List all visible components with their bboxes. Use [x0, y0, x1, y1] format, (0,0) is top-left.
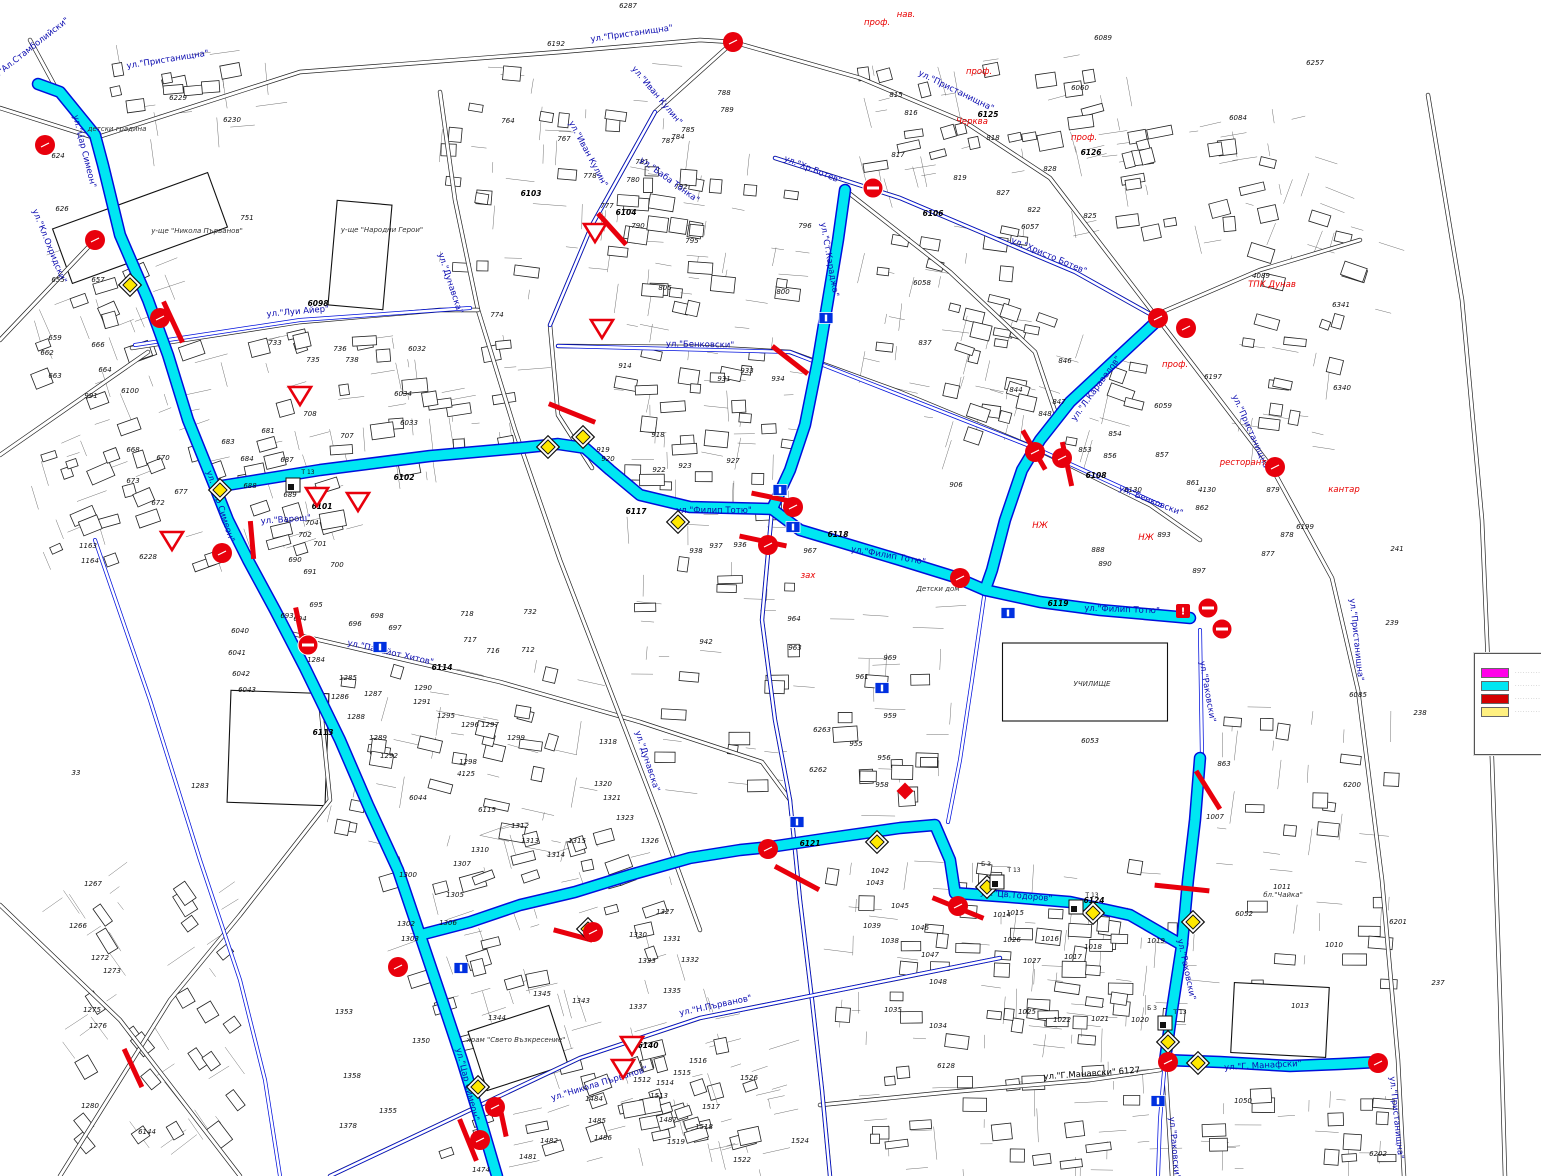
parcel-line [904, 862, 908, 890]
building [677, 557, 689, 572]
parcel-number: 816 [904, 109, 918, 117]
road-casing [1428, 95, 1505, 1176]
parcel-line [1272, 347, 1298, 352]
parcel-line [533, 204, 566, 207]
building [75, 1055, 98, 1080]
building [970, 322, 992, 341]
building [896, 1066, 909, 1079]
parcel-line [534, 909, 537, 918]
parcel-line [932, 1087, 959, 1088]
building [901, 941, 921, 950]
parcel-line [566, 247, 578, 248]
parcel-number: 956 [877, 754, 891, 762]
legend-swatch-route-blocked [1481, 694, 1509, 704]
building [531, 766, 544, 781]
parcel-line [1216, 863, 1233, 865]
parcel-number: 1312 [511, 822, 529, 830]
building [963, 1098, 987, 1112]
building [1361, 1099, 1373, 1110]
building [765, 680, 785, 693]
parcel-number: 1048 [929, 978, 947, 986]
parcel-number: 991 [84, 392, 97, 400]
parcel-number: 1291 [413, 698, 431, 706]
parcel-line [582, 204, 583, 229]
building [257, 437, 277, 453]
parcel-line [159, 408, 171, 413]
parcel-number: 790 [631, 222, 645, 230]
route-edge [772, 509, 1190, 618]
parcel-line [564, 990, 572, 1018]
parcel-line [451, 733, 464, 735]
parcel-number: 777 [600, 202, 614, 210]
parcel-number: 1326 [641, 837, 659, 845]
parcel-number: 1519 [667, 1138, 685, 1146]
parcel-line [221, 899, 238, 909]
parcel-line [627, 517, 629, 544]
parcel-line [509, 1160, 539, 1167]
parcel-line [708, 1143, 712, 1162]
parcel-line [1355, 861, 1367, 862]
parcel-number: 6043 [238, 686, 256, 694]
parcel-line [327, 806, 331, 823]
parcel-line [442, 388, 465, 392]
building [891, 765, 912, 779]
parcel-line [895, 346, 897, 360]
parcel-number: 238 [1413, 709, 1427, 717]
parcel-line [518, 368, 551, 371]
parcel-line [120, 393, 132, 421]
info-sign-glyph [792, 524, 794, 531]
parcel-line [1117, 142, 1130, 144]
parcel-number: 931 [717, 375, 730, 383]
parcel-line [164, 394, 168, 405]
parcel-line [209, 968, 215, 977]
building [1242, 338, 1254, 348]
parcel-line [151, 139, 155, 166]
building [515, 705, 531, 719]
building [1010, 1149, 1024, 1162]
parcel-line [663, 118, 664, 129]
parcel-line [722, 253, 726, 273]
building [41, 451, 57, 462]
parcel-line [186, 532, 203, 537]
parcel-line [652, 64, 682, 67]
legend-label: ············· [1515, 709, 1541, 715]
parcel-line [1294, 905, 1298, 934]
parcel-number: 1025 [1018, 1008, 1036, 1016]
large-building [227, 690, 329, 805]
parcel-number: 853 [1078, 446, 1091, 454]
parcel-line [1351, 227, 1363, 231]
street-blue [95, 540, 280, 1176]
parcel-number: 1323 [616, 814, 634, 822]
parcel-line [1388, 897, 1389, 911]
parcel-line [876, 110, 888, 112]
parcel-line [1204, 240, 1221, 243]
parcel-line [1138, 1141, 1150, 1142]
parcel-number: 847 [1052, 398, 1066, 406]
building [1331, 313, 1344, 329]
building [710, 275, 735, 293]
parcel-line [913, 167, 919, 188]
parcel-number: 1163 [79, 542, 97, 550]
parcel-number: 6201 [1389, 918, 1407, 926]
parcel-number: 1522 [733, 1156, 751, 1164]
yield-sign-icon[interactable] [347, 493, 369, 511]
parcel-line [69, 894, 85, 918]
parcel-number: 6033 [400, 419, 418, 427]
parcel-line [752, 1066, 768, 1071]
parcel-line [950, 703, 951, 725]
building [964, 427, 983, 445]
parcel-line [514, 1141, 533, 1145]
parcel-number: 787 [661, 137, 675, 145]
parcel-number: 1026 [1003, 936, 1021, 944]
parcel-line [522, 808, 554, 815]
building [714, 1037, 729, 1054]
closure-bar-marker[interactable] [250, 521, 253, 559]
building [945, 1034, 970, 1050]
building [1147, 125, 1173, 139]
building [1257, 205, 1278, 224]
building [1313, 793, 1328, 808]
parcel-number: 1378 [339, 1122, 357, 1130]
parcel-number: 735 [306, 356, 320, 364]
parcel-line [756, 1090, 780, 1096]
no-entry-bar [867, 187, 879, 190]
street-name: ул."Дунавска" [435, 252, 464, 316]
parcel-number: 1020 [1131, 1016, 1149, 1024]
parcel-line [338, 396, 364, 399]
parcel-line [107, 994, 117, 1001]
parcel-number: 716 [486, 647, 500, 655]
parcel-number: 681 [261, 427, 274, 435]
poi-label-red: Черква [956, 117, 988, 127]
parcel-line [230, 125, 255, 127]
parcel-line [571, 778, 576, 808]
building [481, 937, 501, 949]
yield-sign-icon[interactable] [591, 320, 613, 338]
building [1342, 1154, 1357, 1162]
parcel-number: 1286 [331, 693, 349, 701]
parcel-line [31, 486, 38, 509]
parcel-line [306, 502, 309, 515]
parcel-number: 796 [798, 222, 812, 230]
parcel-number: 856 [1103, 452, 1117, 460]
parcel-line [95, 420, 110, 425]
building [226, 1090, 245, 1111]
parcel-number: 1474 [472, 1166, 490, 1174]
building [739, 413, 752, 423]
building [293, 332, 311, 349]
building [1129, 362, 1147, 373]
parcel-line [1099, 1130, 1126, 1132]
parcel-line [543, 144, 544, 163]
parcel-number: 1297 [481, 721, 499, 729]
parcel-line [1301, 173, 1309, 196]
parcel-number: 819 [953, 174, 967, 182]
parcel-number: 696 [348, 620, 362, 628]
parcel-line [504, 367, 516, 368]
building [293, 542, 307, 555]
parcel-number: 6257 [1306, 59, 1324, 67]
parcel-number: 666 [91, 341, 105, 349]
building [178, 340, 205, 361]
parcel-line [394, 739, 422, 745]
poi-label-red: проф. [1071, 133, 1097, 143]
parcel-line [433, 893, 438, 914]
building [943, 383, 960, 399]
parcel-number: 1288 [347, 713, 365, 721]
parcel-line [1037, 1108, 1039, 1142]
building [1068, 923, 1091, 937]
street-name: ул."Пристанищна" [126, 49, 210, 72]
yield-sign-icon[interactable] [161, 532, 183, 550]
parcel-number: 684 [240, 455, 253, 463]
building [1125, 178, 1141, 190]
parcel-number: 237 [1431, 979, 1445, 987]
parcel-line [1195, 226, 1202, 254]
parcel-line [772, 248, 776, 266]
parcel-number: 239 [1385, 619, 1399, 627]
legend-label: ············· [1515, 696, 1541, 702]
parcel-line [430, 692, 449, 695]
route-number: 6108 [1086, 471, 1107, 480]
parcel-number: 1010 [1325, 941, 1343, 949]
building [581, 859, 594, 871]
parcel-line [528, 290, 529, 300]
building [1054, 982, 1080, 995]
building [689, 224, 704, 237]
parcel-line [732, 208, 745, 211]
building [744, 184, 757, 196]
building [422, 391, 438, 407]
building-label: детски градина [87, 125, 147, 133]
building [504, 975, 524, 990]
parcel-line [861, 815, 895, 816]
parcel-line [627, 324, 638, 326]
parcel-number: 697 [388, 624, 402, 632]
building [648, 194, 675, 212]
yield-sign-icon[interactable] [289, 387, 311, 405]
parcel-number: 683 [221, 438, 234, 446]
route-number: 6114 [432, 663, 453, 672]
parcel-line [767, 1096, 784, 1100]
parcel-line [219, 882, 235, 893]
building [477, 261, 488, 271]
parcel-line [1146, 185, 1148, 195]
building [940, 124, 956, 139]
poi-label-red: кантар [1328, 485, 1359, 495]
large-building [328, 200, 392, 309]
parcel-number: 827 [996, 189, 1010, 197]
parcel-line [824, 949, 853, 953]
parcel-number: 774 [490, 311, 503, 319]
building [1078, 1035, 1096, 1045]
parcel-line [1313, 446, 1335, 449]
street-name: ул."Бенковски" [666, 339, 735, 350]
building [126, 99, 145, 113]
parcel-number: 738 [345, 356, 359, 364]
building [863, 160, 888, 172]
parcel-number: 712 [521, 646, 535, 654]
city-map-canvas[interactable]: 6230622962462675161926287788789610065565… [0, 0, 1541, 1176]
building [87, 462, 115, 485]
parcel-number: 969 [883, 654, 897, 662]
building-label: бл."Чайка" [1263, 891, 1303, 899]
parcel-number: 1485 [588, 1117, 606, 1125]
building-label: у-ще "Никола Първанов" [150, 227, 243, 235]
parcel-number: 788 [717, 89, 731, 97]
building [70, 293, 88, 308]
parcel-line [1047, 980, 1062, 982]
building [1085, 997, 1103, 1008]
parcel-line [110, 887, 120, 894]
route-highlight [772, 509, 1190, 618]
parcel-number: 1526 [740, 1074, 758, 1082]
parcel-number: 1343 [572, 997, 590, 1005]
info-sign-glyph [796, 819, 798, 826]
parcel-line [266, 363, 269, 373]
parcel-line [589, 268, 608, 270]
parcel-line [875, 709, 906, 710]
parcel-line [1100, 418, 1130, 427]
parcel-line [1032, 865, 1034, 895]
parcel-line [985, 360, 990, 380]
building [732, 400, 746, 413]
parcel-line [61, 435, 80, 443]
building [521, 870, 539, 883]
parcel-line [1064, 930, 1066, 951]
building [776, 278, 787, 288]
parcel-number: 241 [1390, 545, 1403, 553]
building [1288, 410, 1300, 425]
parcel-number: 664 [98, 366, 111, 374]
building [223, 1016, 241, 1033]
parcel-line [1217, 828, 1226, 829]
building [1340, 754, 1361, 765]
parcel-line [906, 1167, 928, 1169]
building [248, 338, 270, 357]
building [998, 410, 1011, 423]
parcel-line [186, 389, 212, 395]
parcel-line [579, 907, 598, 913]
parcel-number: 862 [1195, 504, 1209, 512]
parcel-number: 1302 [397, 920, 415, 928]
building [202, 1051, 220, 1071]
building [640, 474, 665, 486]
parcel-line [721, 1119, 732, 1122]
map-viewport[interactable]: 6230622962462675161926287788789610065565… [0, 0, 1541, 1176]
parcel-number: 890 [1098, 560, 1112, 568]
parcel-line [663, 739, 682, 741]
building [929, 149, 946, 160]
parcel-number: 1518 [695, 1123, 713, 1131]
parcel-number: 1353 [335, 1008, 353, 1016]
parcel-line [555, 140, 556, 165]
parcel-line [381, 697, 388, 721]
parcel-number: 1275 [83, 1006, 101, 1014]
parcel-line [728, 782, 748, 784]
parcel-line [779, 274, 809, 276]
parcel-number: 1321 [603, 794, 621, 802]
parcel-line [493, 206, 495, 230]
parcel-line [572, 1022, 602, 1031]
building-label: у-ще "Народни Герои" [340, 226, 423, 234]
parcel-number: 6197 [1204, 373, 1222, 381]
parcel-line [1101, 1029, 1102, 1063]
building [678, 368, 700, 386]
building [390, 664, 403, 679]
parcel-line [634, 100, 648, 101]
building [1224, 717, 1242, 727]
parcel-number: 673 [126, 477, 139, 485]
parcel-number: 1272 [91, 954, 109, 962]
parcel-number: 1513 [650, 1092, 668, 1100]
closure-bar-marker[interactable] [1155, 885, 1210, 891]
parcel-number: 1517 [702, 1103, 720, 1111]
parcel-number: 1046 [911, 924, 929, 932]
building [545, 734, 559, 751]
parcel-line [692, 1074, 702, 1076]
parcel-number: 961 [855, 673, 868, 681]
parcel-number: 1266 [69, 922, 87, 930]
parcel-line [109, 862, 127, 876]
building-label: храм "Свето Възкресение" [466, 1036, 566, 1044]
parcel-number: 6085 [1349, 691, 1367, 699]
parcel-line [1084, 440, 1093, 469]
building [136, 509, 161, 528]
parcel-line [1325, 187, 1354, 199]
parcel-number: 1524 [791, 1137, 809, 1145]
street-name: ул."Варош" [260, 513, 311, 526]
no-entry-bar [1216, 628, 1228, 631]
route-number: 6118 [828, 530, 849, 539]
parcel-number: 933 [740, 367, 753, 375]
building [870, 1134, 879, 1143]
parcel-number: 6263 [813, 726, 831, 734]
route-number: 6113 [313, 728, 334, 737]
parcel-number: 736 [333, 345, 347, 353]
street-blue-fill [95, 540, 280, 1176]
parcel-line [1343, 729, 1344, 742]
parcel-number: 6200 [1343, 781, 1361, 789]
parcel-line [1072, 211, 1076, 238]
building [439, 1147, 454, 1158]
parcel-line [1311, 711, 1313, 725]
building [475, 193, 489, 205]
parcel-line [1143, 1074, 1144, 1093]
parcel-number: 657 [91, 276, 105, 284]
parcel-line [67, 452, 80, 456]
parcel-line [1025, 922, 1035, 923]
building [1022, 132, 1037, 142]
parcel-line [963, 1169, 965, 1176]
parcel-line [1117, 118, 1119, 130]
parcel-number: 1318 [599, 738, 617, 746]
parcel-line [1375, 309, 1391, 313]
parcel-line [77, 491, 107, 502]
parcel-number: 767 [557, 135, 571, 143]
building [672, 443, 697, 455]
poi-label-red: нав. [897, 10, 915, 20]
parcel-line [426, 472, 427, 480]
building [920, 758, 937, 767]
building [503, 66, 522, 81]
parcel-number: 958 [875, 781, 889, 789]
parcel-number: 922 [652, 466, 666, 474]
poi-label-red: ТПК Дунав [1248, 280, 1296, 290]
